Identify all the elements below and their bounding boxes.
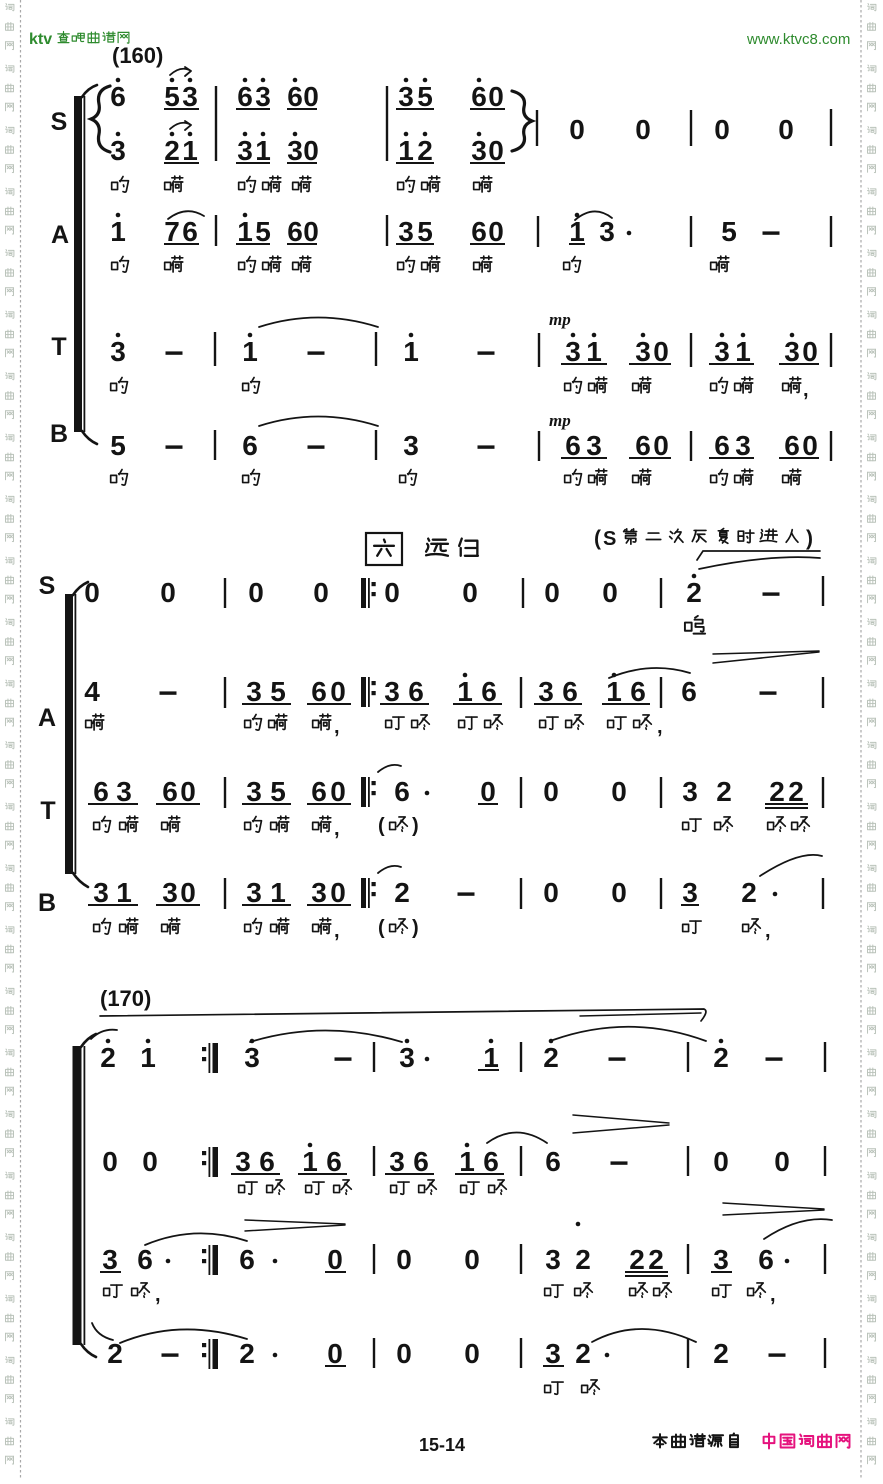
svg-text:0: 0: [464, 1244, 480, 1275]
svg-text:): ): [412, 917, 419, 939]
svg-text:1: 1: [586, 336, 602, 367]
svg-text:1: 1: [116, 877, 132, 908]
svg-text:6: 6: [311, 676, 327, 707]
svg-text:0: 0: [327, 1338, 343, 1369]
svg-text:0: 0: [611, 776, 627, 807]
svg-text:3: 3: [110, 135, 126, 166]
svg-text:3: 3: [599, 216, 615, 247]
svg-text:3: 3: [246, 776, 262, 807]
svg-text:0: 0: [84, 577, 100, 608]
svg-text:1: 1: [483, 1042, 499, 1073]
svg-text:6: 6: [162, 776, 178, 807]
svg-text:,: ,: [803, 379, 809, 401]
svg-text:3: 3: [635, 336, 651, 367]
svg-text:3: 3: [403, 430, 419, 461]
svg-text:0: 0: [635, 114, 651, 145]
svg-text:2: 2: [788, 776, 804, 807]
svg-text:2: 2: [575, 1244, 591, 1275]
svg-text:2: 2: [394, 877, 410, 908]
svg-text:0: 0: [488, 216, 504, 247]
svg-text:B: B: [50, 420, 68, 448]
svg-text:S: S: [51, 108, 68, 136]
svg-text:5: 5: [110, 430, 126, 461]
svg-text:6: 6: [137, 1244, 153, 1275]
svg-text:5: 5: [417, 216, 433, 247]
svg-text:0: 0: [802, 336, 818, 367]
svg-text:0: 0: [653, 430, 669, 461]
svg-text:(: (: [594, 527, 601, 550]
svg-text:3: 3: [384, 676, 400, 707]
svg-text:1: 1: [457, 676, 473, 707]
svg-text:,: ,: [770, 1284, 776, 1306]
svg-text:,: ,: [155, 1284, 161, 1306]
svg-text:2: 2: [417, 135, 433, 166]
svg-text:0: 0: [248, 577, 264, 608]
svg-text:6: 6: [259, 1146, 275, 1177]
svg-text:T: T: [40, 797, 55, 825]
svg-text:1: 1: [140, 1042, 156, 1073]
svg-text:1: 1: [270, 877, 286, 908]
svg-text:3: 3: [235, 1146, 251, 1177]
svg-text:3: 3: [545, 1244, 561, 1275]
svg-text:6: 6: [481, 676, 497, 707]
svg-text:B: B: [38, 889, 56, 917]
svg-text:3: 3: [110, 336, 126, 367]
svg-text:0: 0: [160, 577, 176, 608]
svg-text:1: 1: [735, 336, 751, 367]
svg-text:0: 0: [488, 81, 504, 112]
svg-text:0: 0: [303, 216, 319, 247]
svg-text:3: 3: [714, 336, 730, 367]
svg-text:0: 0: [330, 676, 346, 707]
svg-text:1: 1: [606, 676, 622, 707]
svg-text:2: 2: [100, 1042, 116, 1073]
svg-text:0: 0: [303, 135, 319, 166]
svg-text:5: 5: [164, 81, 180, 112]
svg-text:(160): (160): [112, 43, 163, 68]
svg-text:mp: mp: [549, 310, 571, 329]
svg-text:3: 3: [246, 676, 262, 707]
svg-text:(170): (170): [100, 986, 151, 1011]
svg-text:3: 3: [389, 1146, 405, 1177]
svg-text:15-14: 15-14: [419, 1435, 465, 1455]
svg-text:3: 3: [565, 336, 581, 367]
svg-text:2: 2: [713, 1338, 729, 1369]
svg-text:3: 3: [735, 430, 751, 461]
svg-text:,: ,: [334, 716, 340, 738]
svg-text:2: 2: [769, 776, 785, 807]
svg-text:1: 1: [398, 135, 414, 166]
svg-text:6: 6: [562, 676, 578, 707]
svg-text:A: A: [51, 221, 69, 249]
svg-text:5: 5: [417, 81, 433, 112]
svg-text:0: 0: [102, 1146, 118, 1177]
svg-text:6: 6: [237, 81, 253, 112]
svg-text:3: 3: [682, 776, 698, 807]
svg-text:3: 3: [244, 1042, 260, 1073]
svg-text:3: 3: [682, 877, 698, 908]
svg-text:0: 0: [180, 877, 196, 908]
svg-text:6: 6: [630, 676, 646, 707]
svg-text:3: 3: [93, 877, 109, 908]
svg-text:3: 3: [398, 216, 414, 247]
svg-text:S: S: [39, 572, 56, 600]
svg-text:3: 3: [237, 135, 253, 166]
svg-text:0: 0: [327, 1244, 343, 1275]
svg-text:3: 3: [399, 1042, 415, 1073]
svg-text:6: 6: [287, 81, 303, 112]
svg-text:2: 2: [713, 1042, 729, 1073]
svg-text:6: 6: [93, 776, 109, 807]
svg-text:6: 6: [758, 1244, 774, 1275]
svg-text:0: 0: [774, 1146, 790, 1177]
svg-text:3: 3: [246, 877, 262, 908]
svg-text:6: 6: [413, 1146, 429, 1177]
svg-text:2: 2: [543, 1042, 559, 1073]
svg-text:7: 7: [164, 216, 180, 247]
svg-text:0: 0: [303, 81, 319, 112]
svg-text:3: 3: [311, 877, 327, 908]
svg-text:6: 6: [326, 1146, 342, 1177]
svg-text:): ): [806, 527, 813, 550]
svg-text:): ): [412, 815, 419, 837]
svg-text:3: 3: [162, 877, 178, 908]
svg-text:0: 0: [330, 877, 346, 908]
svg-text:0: 0: [602, 577, 618, 608]
svg-text:0: 0: [180, 776, 196, 807]
svg-text:1: 1: [459, 1146, 475, 1177]
svg-text:0: 0: [714, 114, 730, 145]
svg-text:6: 6: [408, 676, 424, 707]
svg-text:3: 3: [116, 776, 132, 807]
svg-text:5: 5: [721, 216, 737, 247]
svg-text:5: 5: [270, 776, 286, 807]
svg-text:0: 0: [142, 1146, 158, 1177]
svg-text:3: 3: [713, 1244, 729, 1275]
svg-text:1: 1: [302, 1146, 318, 1177]
svg-text:2: 2: [164, 135, 180, 166]
svg-text:5: 5: [255, 216, 271, 247]
svg-text:0: 0: [544, 577, 560, 608]
svg-text:1: 1: [110, 216, 126, 247]
svg-text:4: 4: [84, 676, 100, 707]
svg-text:,: ,: [334, 818, 340, 840]
svg-text:6: 6: [635, 430, 651, 461]
svg-text:0: 0: [313, 577, 329, 608]
svg-text:2: 2: [575, 1338, 591, 1369]
svg-text:(: (: [378, 917, 385, 939]
svg-text:2: 2: [648, 1244, 664, 1275]
svg-text:2: 2: [741, 877, 757, 908]
svg-text:0: 0: [488, 135, 504, 166]
svg-text:2: 2: [716, 776, 732, 807]
svg-text:2: 2: [239, 1338, 255, 1369]
svg-text:6: 6: [545, 1146, 561, 1177]
svg-text:S: S: [603, 528, 616, 550]
svg-text:0: 0: [464, 1338, 480, 1369]
svg-text:1: 1: [255, 135, 271, 166]
svg-text:,: ,: [657, 716, 663, 738]
svg-text:6: 6: [471, 81, 487, 112]
svg-text:3: 3: [182, 81, 198, 112]
svg-text:0: 0: [713, 1146, 729, 1177]
svg-text:0: 0: [480, 776, 496, 807]
svg-text:6: 6: [681, 676, 697, 707]
svg-text:0: 0: [543, 877, 559, 908]
svg-text:6: 6: [471, 216, 487, 247]
svg-text:ktv: ktv: [29, 31, 52, 48]
svg-text:3: 3: [784, 336, 800, 367]
svg-text:6: 6: [311, 776, 327, 807]
svg-text:3: 3: [471, 135, 487, 166]
svg-text:mp: mp: [549, 411, 571, 430]
svg-text:0: 0: [569, 114, 585, 145]
svg-text:0: 0: [802, 430, 818, 461]
svg-text:1: 1: [569, 216, 585, 247]
svg-text:0: 0: [330, 776, 346, 807]
svg-text:6: 6: [565, 430, 581, 461]
svg-text:6: 6: [394, 776, 410, 807]
svg-text:www.ktvc8.com: www.ktvc8.com: [746, 31, 850, 48]
svg-text:2: 2: [686, 577, 702, 608]
svg-text:6: 6: [287, 216, 303, 247]
svg-text:6: 6: [242, 430, 258, 461]
svg-text:0: 0: [611, 877, 627, 908]
svg-text:1: 1: [403, 336, 419, 367]
svg-text:0: 0: [543, 776, 559, 807]
svg-text:1: 1: [237, 216, 253, 247]
svg-text:,: ,: [334, 920, 340, 942]
svg-text:3: 3: [102, 1244, 118, 1275]
svg-text:0: 0: [384, 577, 400, 608]
svg-text:6: 6: [483, 1146, 499, 1177]
svg-text:0: 0: [653, 336, 669, 367]
svg-text:(: (: [378, 815, 385, 837]
svg-text:3: 3: [287, 135, 303, 166]
svg-text:6: 6: [714, 430, 730, 461]
svg-text:3: 3: [586, 430, 602, 461]
svg-text:3: 3: [398, 81, 414, 112]
svg-text:6: 6: [784, 430, 800, 461]
svg-text:6: 6: [110, 81, 126, 112]
svg-text:T: T: [51, 333, 66, 361]
svg-text:6: 6: [239, 1244, 255, 1275]
svg-text:6: 6: [182, 216, 198, 247]
svg-text:2: 2: [629, 1244, 645, 1275]
svg-text:3: 3: [538, 676, 554, 707]
svg-text:3: 3: [545, 1338, 561, 1369]
svg-text:1: 1: [182, 135, 198, 166]
svg-text:0: 0: [396, 1244, 412, 1275]
svg-text:3: 3: [255, 81, 271, 112]
svg-text:1: 1: [242, 336, 258, 367]
svg-text:0: 0: [396, 1338, 412, 1369]
svg-text:A: A: [38, 704, 56, 732]
svg-text:,: ,: [765, 920, 771, 942]
svg-text:5: 5: [270, 676, 286, 707]
svg-text:0: 0: [462, 577, 478, 608]
svg-text:0: 0: [778, 114, 794, 145]
